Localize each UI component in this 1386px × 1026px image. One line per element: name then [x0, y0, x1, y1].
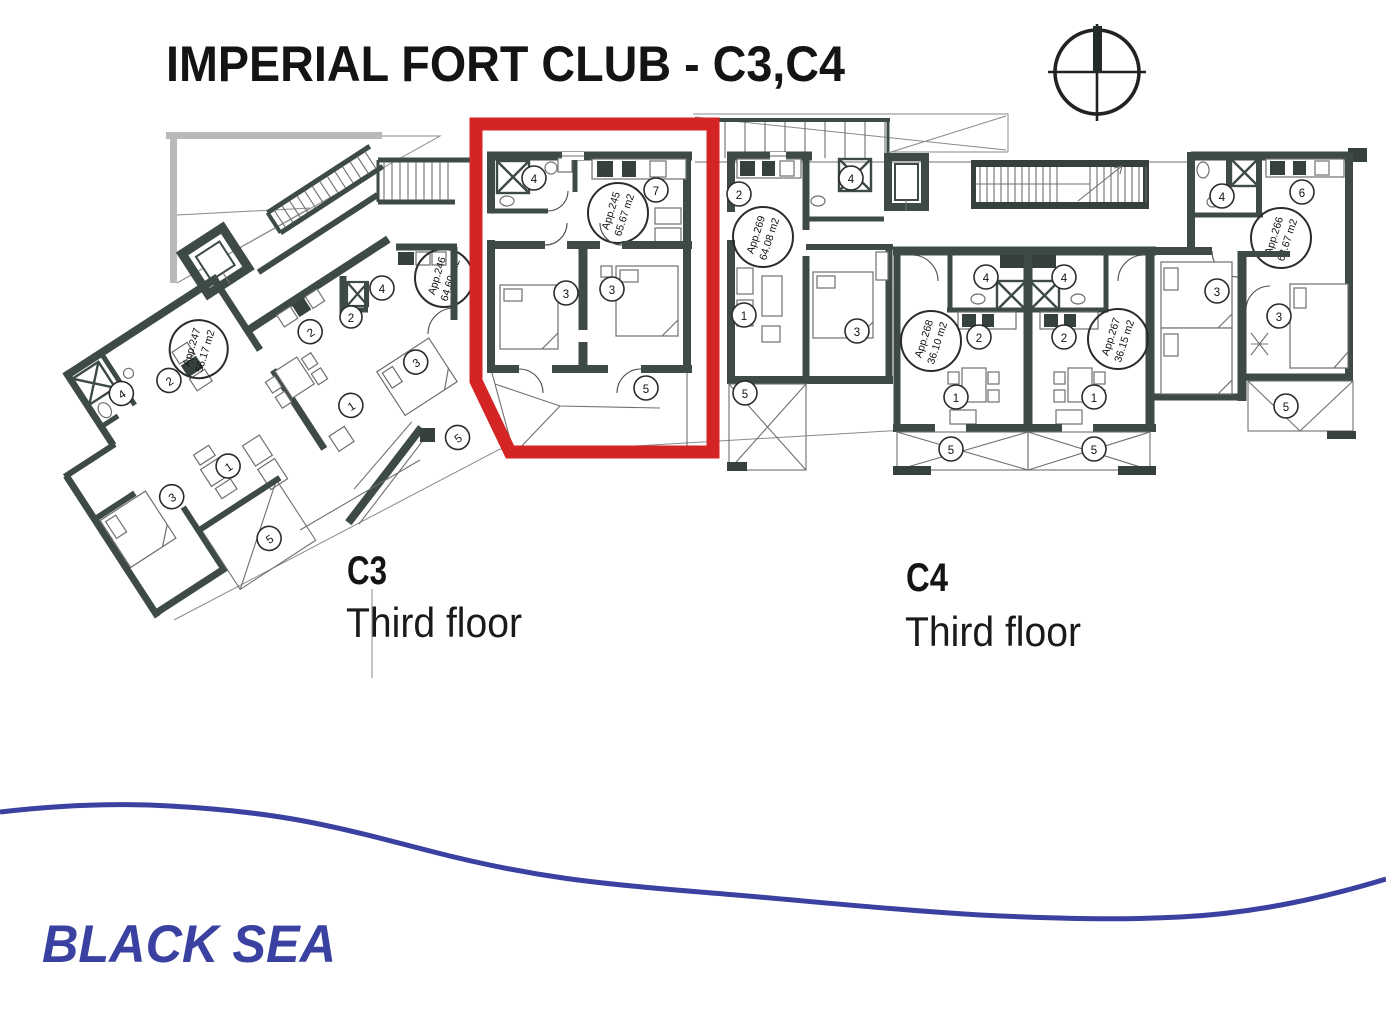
svg-text:7: 7 [653, 186, 659, 198]
svg-text:C4: C4 [906, 556, 949, 600]
svg-text:3: 3 [854, 327, 860, 339]
svg-text:C3: C3 [347, 549, 387, 593]
svg-text:3: 3 [1276, 312, 1282, 324]
svg-text:5: 5 [948, 445, 954, 457]
svg-text:2: 2 [348, 313, 354, 325]
svg-text:3: 3 [563, 289, 569, 301]
svg-text:5: 5 [742, 389, 748, 401]
svg-text:6: 6 [1299, 188, 1305, 200]
svg-text:4: 4 [531, 174, 538, 186]
svg-text:1: 1 [1091, 393, 1097, 405]
svg-text:4: 4 [1061, 273, 1068, 285]
svg-text:2: 2 [1061, 333, 1067, 345]
svg-text:5: 5 [643, 384, 649, 396]
svg-text:IMPERIAL FORT CLUB - C3,C4: IMPERIAL FORT CLUB - C3,C4 [166, 36, 845, 92]
svg-text:3: 3 [1214, 287, 1220, 299]
svg-text:4: 4 [983, 273, 990, 285]
svg-text:1: 1 [953, 393, 959, 405]
svg-text:2: 2 [736, 190, 742, 202]
svg-text:4: 4 [1219, 192, 1226, 204]
svg-text:4: 4 [379, 284, 386, 296]
svg-text:Third floor: Third floor [346, 599, 522, 646]
svg-text:5: 5 [1283, 402, 1289, 414]
svg-text:Third floor: Third floor [905, 608, 1081, 655]
svg-text:3: 3 [609, 285, 615, 297]
svg-text:4: 4 [848, 174, 855, 186]
svg-text:BLACK SEA: BLACK SEA [42, 915, 336, 974]
svg-text:2: 2 [976, 333, 982, 345]
svg-text:5: 5 [1091, 445, 1097, 457]
svg-text:1: 1 [741, 311, 747, 323]
